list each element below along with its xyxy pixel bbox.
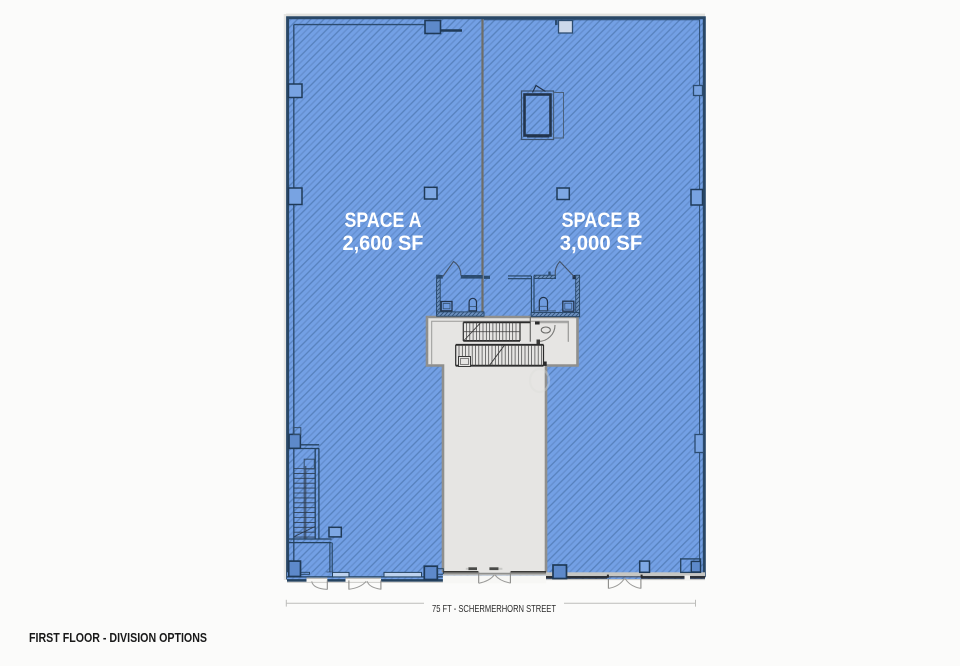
svg-text:3,000 SF: 3,000 SF	[560, 231, 643, 255]
svg-text:75 FT - SCHERMERHORN STREET: 75 FT - SCHERMERHORN STREET	[432, 603, 556, 615]
svg-text:FIRST FLOOR - DIVISION OPTIONS: FIRST FLOOR - DIVISION OPTIONS	[29, 631, 207, 645]
svg-text:SPACE A: SPACE A	[345, 208, 422, 232]
svg-text:SPACE B: SPACE B	[562, 208, 641, 232]
svg-text:2,600 SF: 2,600 SF	[343, 231, 424, 255]
